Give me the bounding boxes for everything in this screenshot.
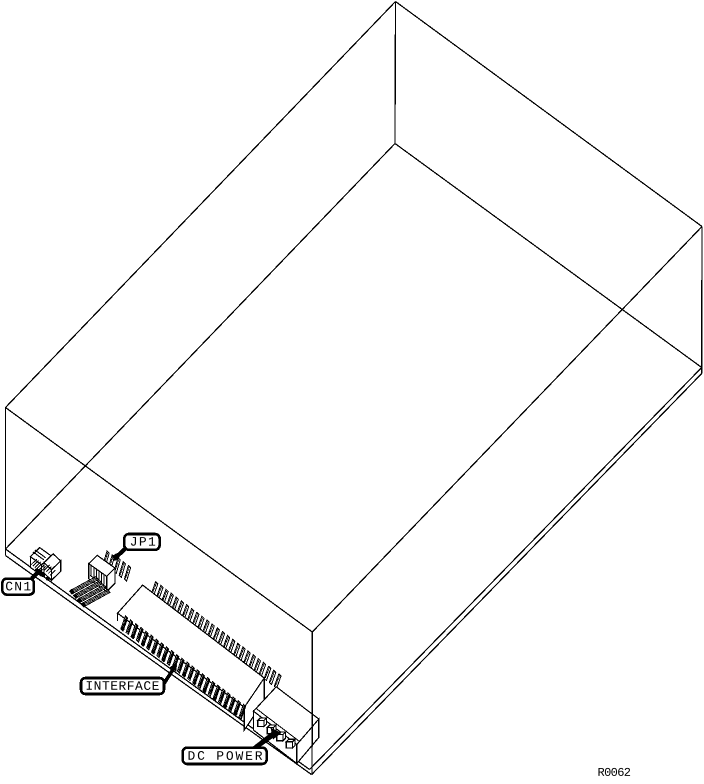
svg-text:INTERFACE: INTERFACE (85, 679, 159, 694)
svg-text:JP1: JP1 (130, 535, 156, 550)
svg-text:DC POWER: DC POWER (187, 749, 262, 764)
svg-text:R0062: R0062 (597, 766, 631, 780)
svg-text:CN1: CN1 (5, 579, 31, 594)
